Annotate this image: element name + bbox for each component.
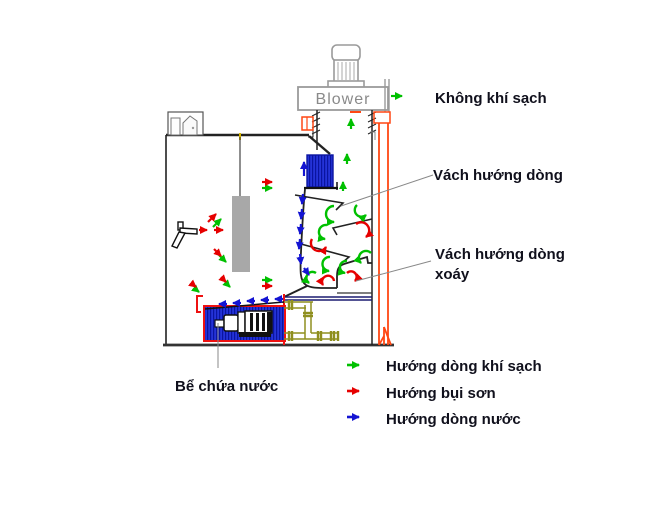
legend-water-flow-label: Hướng dòng nước	[386, 411, 521, 428]
clean-air-swirls	[306, 205, 371, 283]
workpiece	[232, 196, 250, 272]
sprayer-box	[307, 155, 333, 187]
pipe-flanges	[289, 300, 338, 341]
water-sprayer	[304, 155, 338, 190]
column-base-brace	[379, 327, 391, 345]
leader-flow-baffle	[341, 175, 433, 206]
leader-vortex-baffle	[356, 261, 431, 281]
blower-label: Blower	[316, 91, 371, 108]
support-column	[302, 112, 391, 345]
motor-cap	[332, 45, 360, 61]
ceiling-slant	[309, 136, 330, 154]
baffle-chamber	[284, 189, 372, 300]
blower-assembly: Blower	[298, 45, 389, 112]
water-tank-group	[197, 294, 285, 345]
spray-gun	[172, 222, 197, 248]
label-clean-air: Không khí sạch	[435, 90, 547, 107]
legend-clean-air-label: Hướng dòng khí sạch	[386, 358, 542, 375]
pump-suction	[215, 320, 224, 327]
ceiling-vent-box	[168, 112, 203, 135]
label-vortex-baffle-line1: Vách hướng dòng	[435, 246, 565, 263]
pump-body	[224, 315, 238, 331]
pump-base	[239, 332, 271, 337]
water-piping	[284, 300, 338, 341]
weir-to-tank	[284, 286, 307, 297]
duct-hatch-marks	[312, 112, 376, 134]
column-top-flange	[374, 112, 390, 123]
chamber-left-wall	[301, 189, 337, 288]
legend: Hướng dòng khí sạch Hướng bụi sơn Hướng …	[347, 358, 542, 428]
paint-booth-diagram-page: Blower	[0, 0, 665, 511]
label-vortex-baffle-line2: xoáy	[435, 266, 470, 283]
tank-left-bracket	[197, 296, 203, 312]
baffle-2	[333, 219, 372, 235]
paint-booth-diagram: Blower	[0, 0, 665, 511]
label-water-tank: Bể chứa nước	[175, 378, 278, 395]
legend-paint-dust-label: Hướng bụi sơn	[386, 385, 496, 402]
pump-coupling	[238, 312, 245, 333]
label-flow-baffle: Vách hướng dòng	[433, 167, 563, 184]
